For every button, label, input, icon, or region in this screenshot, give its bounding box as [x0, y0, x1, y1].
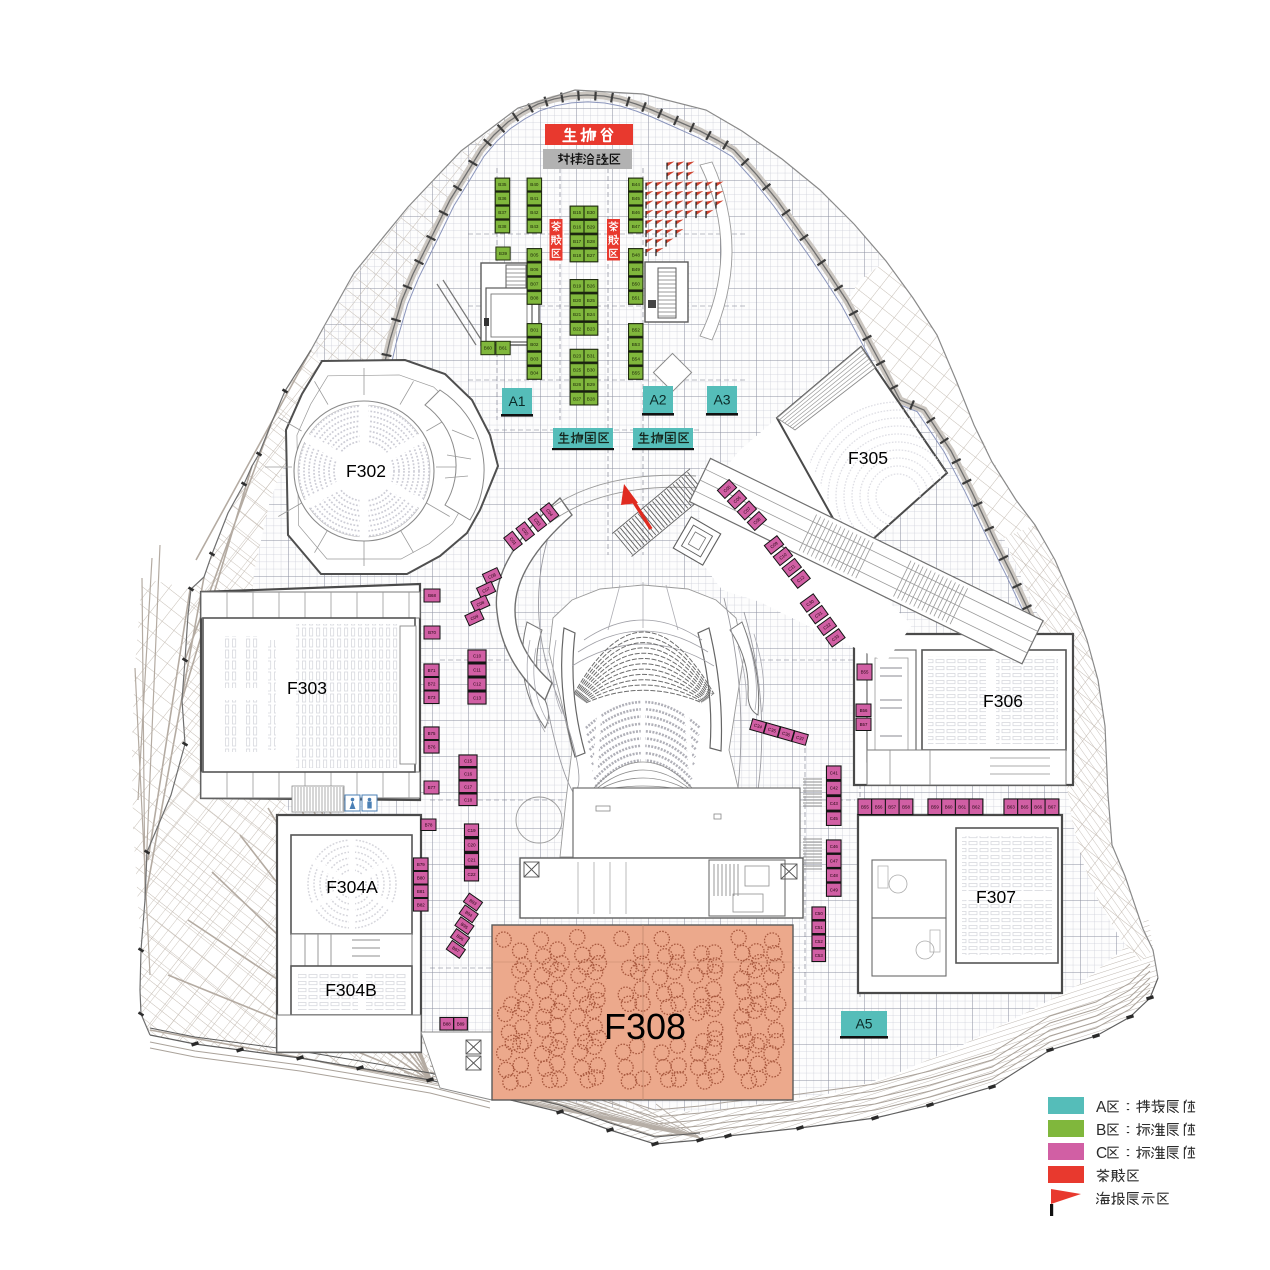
svg-text:C15: C15 [464, 758, 473, 763]
svg-text:B23: B23 [587, 327, 596, 332]
svg-text:B17: B17 [573, 239, 582, 244]
svg-text:B21: B21 [573, 312, 582, 317]
svg-text:B22: B22 [573, 327, 582, 332]
svg-text:B57: B57 [888, 804, 896, 809]
svg-text:B55: B55 [632, 371, 641, 376]
svg-text:B28: B28 [587, 239, 596, 244]
svg-text:C51: C51 [815, 925, 824, 930]
svg-text:B66: B66 [1034, 804, 1042, 809]
svg-text:C47: C47 [830, 859, 839, 864]
svg-text:B45: B45 [632, 196, 641, 201]
svg-text:B59: B59 [931, 804, 939, 809]
svg-text:B27: B27 [573, 396, 582, 401]
svg-text:B37: B37 [498, 210, 507, 215]
svg-text:C22: C22 [467, 872, 476, 877]
svg-text:C16: C16 [464, 771, 473, 776]
svg-text:B19: B19 [573, 284, 582, 289]
svg-text:B: B [1096, 1122, 1106, 1139]
svg-text:B51: B51 [632, 296, 641, 301]
svg-text:B63: B63 [1007, 804, 1015, 809]
svg-text:C52: C52 [815, 939, 824, 944]
svg-text:B60: B60 [945, 804, 953, 809]
svg-text:B88: B88 [443, 1021, 451, 1026]
svg-text:B26: B26 [587, 284, 596, 289]
svg-text:B75: B75 [428, 731, 436, 736]
svg-text:B44: B44 [632, 182, 641, 187]
svg-text:B48: B48 [632, 253, 641, 258]
svg-text:B65: B65 [1021, 804, 1029, 809]
svg-text:B52: B52 [632, 328, 641, 333]
svg-text:F303: F303 [287, 678, 327, 698]
svg-text:B62: B62 [972, 804, 980, 809]
svg-text:C48: C48 [830, 873, 839, 878]
svg-text:C50: C50 [815, 911, 824, 916]
svg-text:B29: B29 [587, 225, 596, 230]
svg-text:A3: A3 [713, 392, 730, 408]
svg-text:F306: F306 [983, 691, 1023, 711]
svg-text:C19: C19 [467, 828, 476, 833]
svg-text:F307: F307 [976, 887, 1016, 907]
svg-text:B57: B57 [860, 722, 868, 727]
svg-text:B43: B43 [530, 224, 539, 229]
svg-text:A1: A1 [508, 393, 525, 409]
svg-text:B29: B29 [587, 382, 596, 387]
svg-text:B67: B67 [1048, 804, 1056, 809]
svg-text:B54: B54 [632, 356, 641, 361]
svg-text:B50: B50 [632, 281, 641, 286]
svg-text:B18: B18 [573, 253, 582, 258]
svg-text:B53: B53 [632, 342, 641, 347]
svg-text:B28: B28 [587, 396, 596, 401]
svg-text:B70: B70 [428, 630, 436, 635]
svg-text:B25: B25 [573, 368, 582, 373]
svg-text:B47: B47 [632, 224, 641, 229]
svg-text:B77: B77 [428, 785, 436, 790]
svg-text:A5: A5 [855, 1016, 872, 1032]
svg-text:B61: B61 [499, 346, 508, 351]
svg-text:C21: C21 [467, 858, 476, 863]
svg-text:B26: B26 [573, 382, 582, 387]
svg-text:C53: C53 [815, 953, 824, 958]
svg-text:B16: B16 [573, 225, 582, 230]
svg-text:A: A [1096, 1099, 1107, 1116]
svg-text:C49: C49 [830, 887, 839, 892]
svg-text:C42: C42 [830, 786, 839, 791]
svg-text:B60: B60 [484, 346, 493, 351]
svg-text:C12: C12 [473, 682, 482, 687]
svg-text:B41: B41 [530, 196, 539, 201]
svg-text:B36: B36 [498, 196, 507, 201]
svg-text:F304B: F304B [325, 980, 377, 1000]
svg-text:B72: B72 [428, 681, 436, 686]
svg-text:C11: C11 [473, 668, 481, 673]
svg-text:B78: B78 [425, 822, 433, 827]
svg-text:C46: C46 [830, 844, 839, 849]
svg-text:B05: B05 [530, 253, 539, 258]
svg-text:B89: B89 [457, 1021, 465, 1026]
svg-text:B39: B39 [499, 251, 508, 256]
svg-text:B68: B68 [428, 593, 436, 598]
svg-text:B30: B30 [587, 368, 596, 373]
svg-text:B01: B01 [530, 328, 539, 333]
svg-text:B04: B04 [530, 371, 539, 376]
svg-text:F308: F308 [604, 1006, 686, 1047]
svg-text:B61: B61 [958, 804, 966, 809]
svg-text:B56: B56 [860, 708, 868, 713]
svg-text:F305: F305 [848, 448, 888, 468]
svg-text:B35: B35 [498, 182, 507, 187]
svg-text:B31: B31 [587, 353, 596, 358]
svg-text:B24: B24 [587, 312, 596, 317]
svg-text:B58: B58 [902, 804, 910, 809]
svg-text:B49: B49 [632, 267, 641, 272]
svg-text:B80: B80 [417, 875, 425, 880]
svg-text:B03: B03 [530, 356, 539, 361]
svg-text:C41: C41 [830, 770, 839, 775]
svg-text:B55: B55 [861, 670, 869, 675]
svg-text:F302: F302 [346, 461, 386, 481]
svg-text:B02: B02 [530, 342, 539, 347]
svg-text:C13: C13 [473, 696, 482, 701]
svg-text:F304A: F304A [326, 877, 378, 897]
svg-text:B46: B46 [632, 210, 641, 215]
svg-text:C43: C43 [830, 801, 839, 806]
svg-text:B06: B06 [530, 267, 539, 272]
svg-text:B38: B38 [498, 224, 507, 229]
svg-text:B15: B15 [573, 210, 582, 215]
svg-text:C20: C20 [467, 843, 476, 848]
svg-text:A2: A2 [649, 392, 666, 408]
svg-text:B08: B08 [530, 296, 539, 301]
svg-text:B55: B55 [861, 804, 869, 809]
svg-text:B81: B81 [417, 889, 425, 894]
svg-text:B82: B82 [417, 902, 425, 907]
svg-text:B07: B07 [530, 281, 539, 286]
svg-text:C: C [1096, 1145, 1107, 1162]
svg-text:B30: B30 [587, 210, 596, 215]
svg-text:B76: B76 [428, 744, 436, 749]
svg-text:B27: B27 [587, 253, 596, 258]
svg-text:B25: B25 [587, 298, 596, 303]
svg-text:B42: B42 [530, 210, 539, 215]
svg-text:C45: C45 [830, 816, 839, 821]
svg-text:B20: B20 [573, 298, 582, 303]
svg-text:B79: B79 [417, 862, 425, 867]
svg-text:B40: B40 [530, 182, 539, 187]
svg-text:B56: B56 [875, 804, 883, 809]
svg-text:B23: B23 [573, 353, 582, 358]
svg-text:C10: C10 [473, 654, 482, 659]
svg-text:C17: C17 [464, 784, 473, 789]
svg-text:B71: B71 [428, 668, 436, 673]
svg-text:B73: B73 [428, 695, 436, 700]
svg-text:C18: C18 [464, 797, 473, 802]
